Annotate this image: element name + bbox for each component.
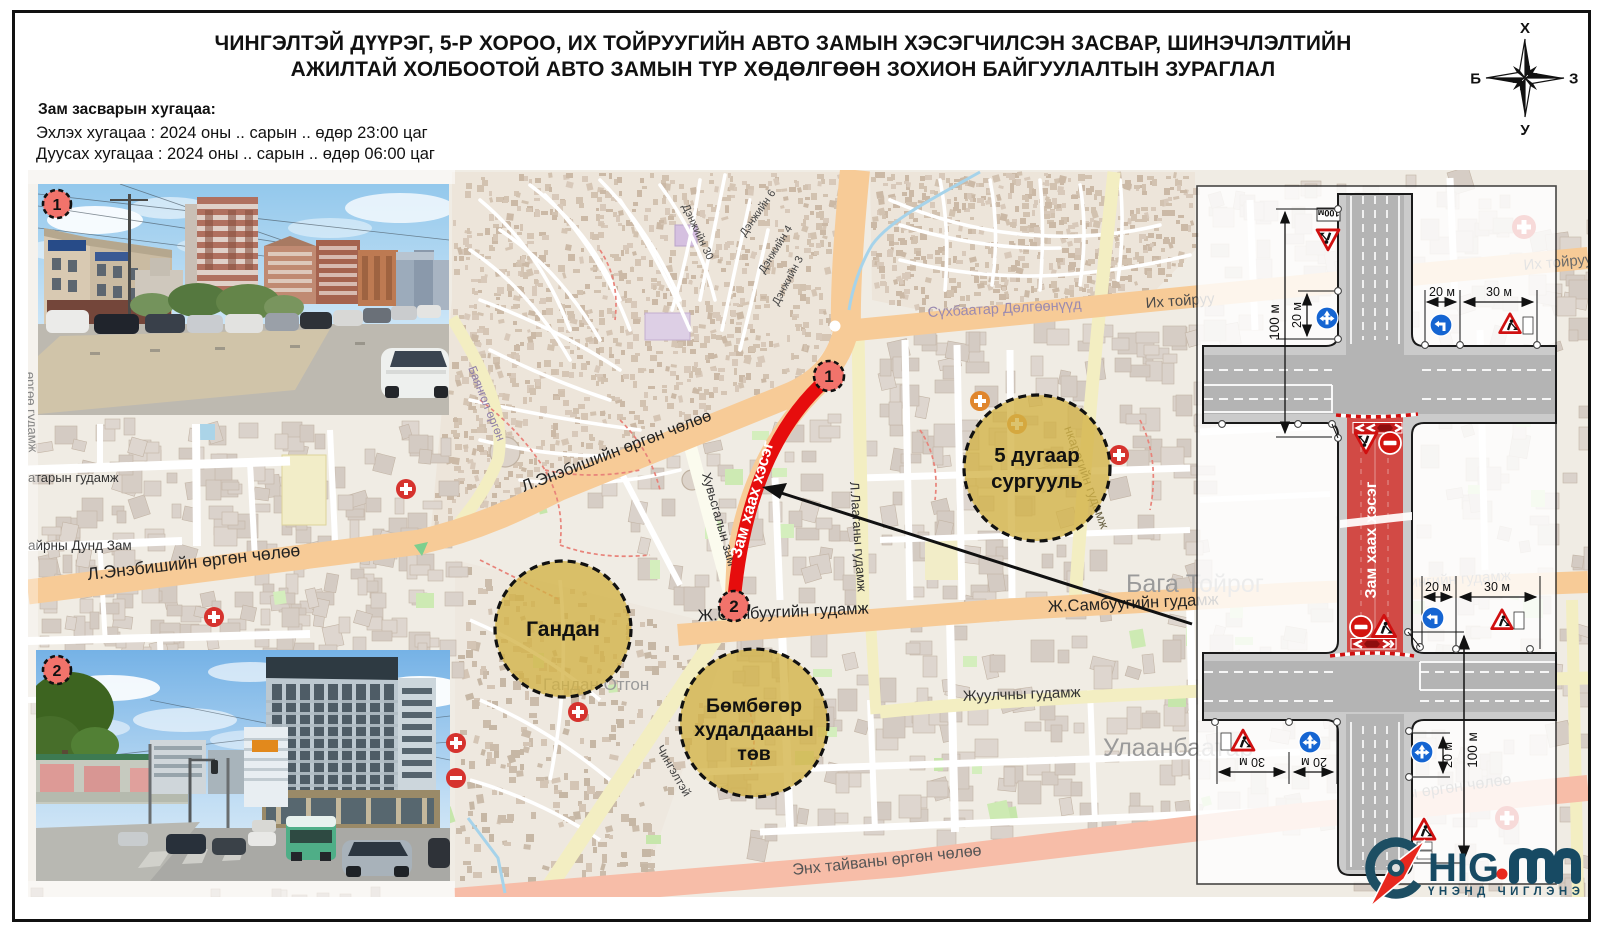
svg-text:1: 1 (53, 197, 62, 214)
svg-text:30 м: 30 м (1484, 580, 1510, 594)
svg-text:2: 2 (53, 663, 62, 680)
svg-text:З: З (1569, 71, 1578, 88)
svg-text:20 м: 20 м (1290, 302, 1304, 328)
svg-text:5 дугаар: 5 дугаар (994, 444, 1080, 467)
svg-text:атарын гудамж: атарын гудамж (28, 470, 119, 485)
svg-text:100 м: 100 м (1465, 732, 1480, 768)
svg-text:ҮНЭНД ЧИГЛЭНЭ: ҮНЭНД ЧИГЛЭНЭ (1428, 886, 1584, 898)
svg-text:30 м: 30 м (1486, 285, 1512, 299)
svg-text:HIG: HIG (1428, 846, 1499, 890)
svg-text:Б: Б (1470, 71, 1481, 88)
svg-text:1: 1 (824, 367, 833, 386)
svg-text:20 м: 20 м (1301, 755, 1327, 769)
svg-text:100 м: 100 м (1267, 304, 1282, 340)
svg-text:худалдааны: худалдааны (694, 719, 814, 741)
svg-text:2: 2 (729, 597, 738, 616)
svg-text:20 м: 20 м (1429, 285, 1455, 299)
svg-text:сургууль: сургууль (991, 470, 1083, 493)
svg-text:У: У (1520, 122, 1530, 139)
svg-text:төв: төв (737, 743, 770, 765)
svg-text:20 м: 20 м (1441, 742, 1455, 768)
svg-text:айрны Дунд Зам: айрны Дунд Зам (28, 538, 132, 553)
svg-text:Гандан: Гандан (526, 618, 600, 641)
svg-text:Х: Х (1520, 20, 1530, 37)
svg-text:Зам хаах хэсэг: Зам хаах хэсэг (1363, 481, 1380, 598)
svg-text:20 м: 20 м (1425, 580, 1451, 594)
svg-text:Бөмбөгөр: Бөмбөгөр (706, 695, 802, 717)
svg-text:30 м: 30 м (1239, 755, 1265, 769)
